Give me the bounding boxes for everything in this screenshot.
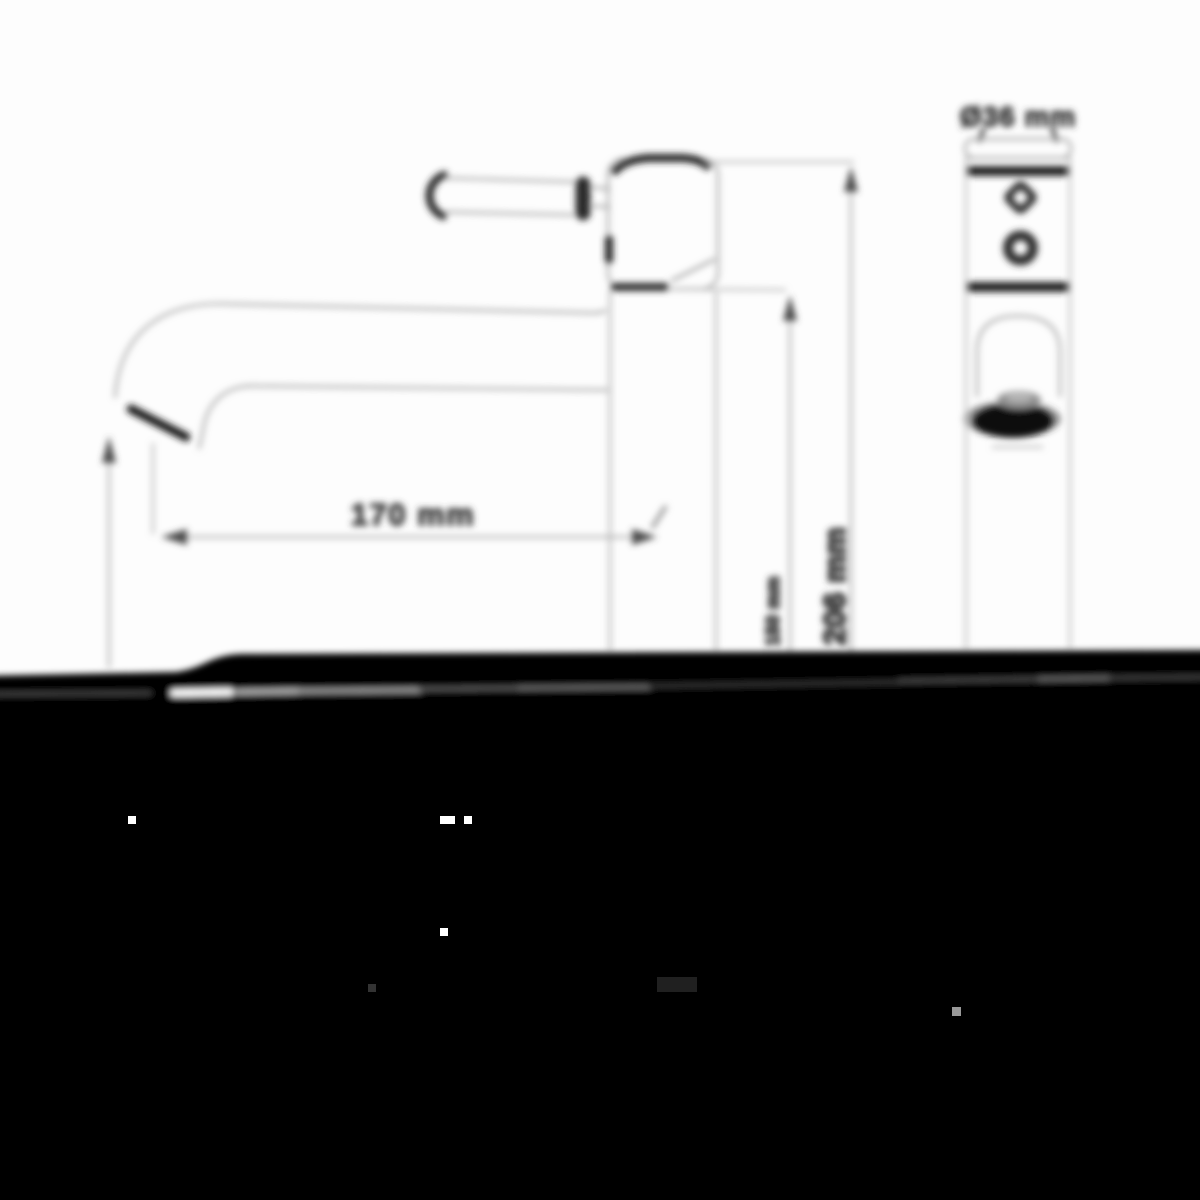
svg-text:170 mm: 170 mm [351, 497, 475, 532]
svg-text:206 mm: 206 mm [817, 527, 852, 645]
svg-text:150 mm: 150 mm [763, 576, 783, 646]
svg-text:Ø36 mm: Ø36 mm [960, 101, 1077, 132]
